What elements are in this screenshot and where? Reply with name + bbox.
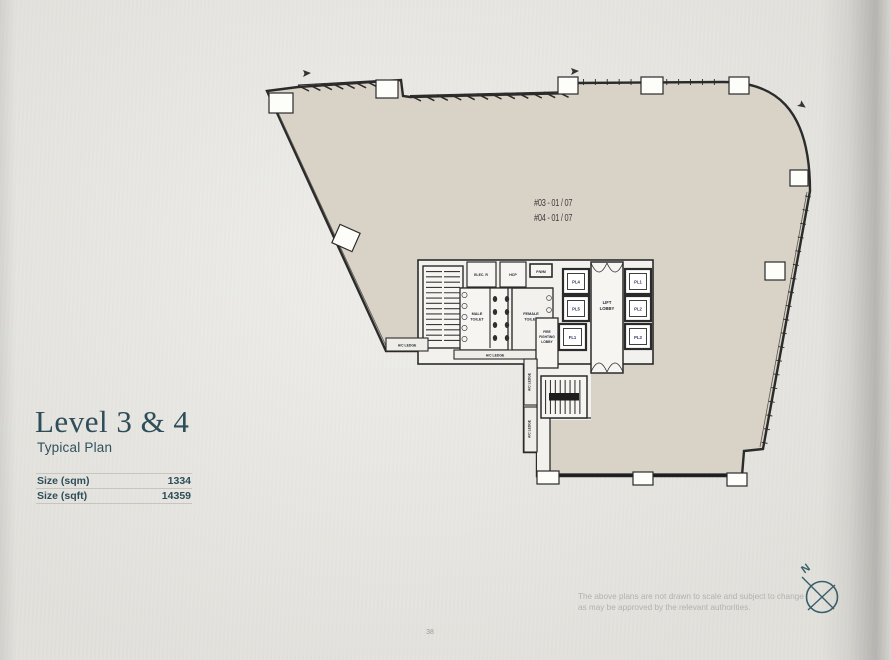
staircase-1 [423,266,463,348]
disclaimer-line-2: as may be approved by the relevant autho… [578,602,818,613]
size-sqft-value: 14359 [162,490,191,502]
page-subtitle: Typical Plan [37,440,112,455]
pwm-label: P/WM [536,270,546,274]
lift-pl2-label: PL2 [634,307,642,312]
riser-room-label: ELEC. R [474,273,488,277]
marker-icon [303,70,311,77]
page-title: Level 3 & 4 [35,404,189,440]
hcp-label: HCP [509,273,517,277]
riser-room: ELEC. R [467,262,496,287]
size-row-sqft: Size (sqft) 14359 [36,488,192,503]
disclaimer: The above plans are not drawn to scale a… [578,591,818,614]
page-left-shadow [0,0,16,660]
size-sqft-label: Size (sqft) [37,490,87,502]
ac-ledge-left-label: A/C LEDGE [398,344,417,348]
pwm-room: P/WM [530,264,552,277]
staircase-2 [541,376,587,418]
floor-plan-svg: ELEC. R HCP P/WM MALE TOILET [253,66,833,512]
lift-pl4: PL4 [563,269,589,294]
lift-pl5-label: PL5 [572,307,580,312]
lift-lobby-label-2: LOBBY [600,306,615,311]
disclaimer-line-1: The above plans are not drawn to scale a… [578,591,818,602]
lift-pl2: PL2 [625,296,651,321]
page-number: 38 [415,629,445,636]
male-toilet-label-1: MALE [472,312,483,316]
ac-ledge-center-label: A/C LEDGE [486,354,505,358]
lift-pl5: PL5 [563,296,589,321]
ac-ledge-strip-1: A/C LEDGE [524,359,537,405]
lift-lobby: LIFT LOBBY [591,262,623,373]
lift-pl4-label: PL4 [572,280,580,285]
ffl-label-1: FIRE [543,330,551,334]
compass: N [791,560,855,624]
fire-fighting-lobby: FIRE FIGHTING LOBBY [536,318,558,368]
lift-pl3: PL3 [625,324,651,349]
ffl-label-3: LOBBY [541,340,553,344]
male-toilet-label-2: TOILET [470,318,484,322]
marker-icon [571,68,579,75]
size-sqm-label: Size (sqm) [37,475,90,487]
lift-lobby-label-1: LIFT [603,300,612,305]
size-row-sqm: Size (sqm) 1334 [36,473,192,488]
size-table: Size (sqm) 1334 Size (sqft) 14359 [36,473,192,504]
floor-plan: ELEC. R HCP P/WM MALE TOILET [253,66,833,512]
lift-pl1-label: PL1 [634,280,642,285]
lift-fl1: FL1 [559,324,586,350]
marker-icon [797,100,808,110]
ac-ledge-strip-2-label: A/C LEDGE [528,419,532,438]
lift-pl3-label: PL3 [634,335,642,340]
unit-number-2: #04 - 01 / 07 [534,212,573,223]
lift-fl1-label: FL1 [569,335,577,340]
ac-ledge-strip-1-label: A/C LEDGE [528,372,532,391]
lift-pl1: PL1 [625,269,651,294]
ffl-label-2: FIGHTING [539,335,555,339]
ac-ledge-left: A/C LEDGE [386,338,428,351]
size-sqm-value: 1334 [168,475,191,487]
ac-ledge-center: A/C LEDGE [454,350,536,359]
male-toilet: MALE TOILET [460,288,508,350]
female-toilet-label-1: FEMALE [523,312,539,316]
unit-number-1: #03 - 01 / 07 [534,197,573,208]
corridor-floor [537,420,550,475]
hcp-toilet: HCP [500,262,526,287]
ac-ledge-strip-2: A/C LEDGE [524,407,537,452]
